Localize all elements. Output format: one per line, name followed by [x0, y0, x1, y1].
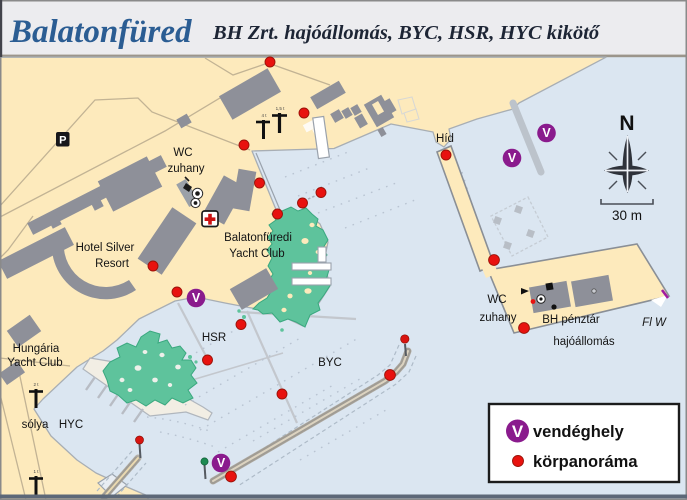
svg-text:30 m: 30 m: [612, 208, 642, 223]
svg-text:V: V: [542, 126, 551, 140]
svg-text:WC: WC: [487, 294, 506, 306]
svg-text:Yacht Club: Yacht Club: [7, 357, 62, 369]
svg-text:V: V: [217, 456, 226, 470]
svg-text:2 t: 2 t: [33, 382, 39, 387]
svg-text:Híd: Híd: [436, 133, 454, 145]
svg-text:Balatonfüredi: Balatonfüredi: [224, 232, 292, 244]
svg-text:hajóállomás: hajóállomás: [553, 336, 615, 348]
svg-text:Resort: Resort: [95, 258, 130, 270]
svg-text:BH Zrt. hajóállomás, BYC, HSR,: BH Zrt. hajóállomás, BYC, HSR, HYC kiköt…: [212, 22, 601, 44]
svg-text:Fl W: Fl W: [642, 317, 667, 329]
svg-text:1 t: 1 t: [33, 469, 39, 474]
svg-text:V: V: [192, 291, 201, 305]
svg-text:BYC: BYC: [318, 357, 342, 369]
svg-text:Balatonfüred: Balatonfüred: [9, 14, 192, 50]
svg-text:4 t: 4 t: [261, 113, 267, 118]
svg-text:Hotel Silver: Hotel Silver: [76, 242, 135, 254]
svg-text:Yacht Club: Yacht Club: [229, 248, 284, 260]
svg-text:BH pénztár: BH pénztár: [542, 314, 600, 326]
svg-text:zuhany: zuhany: [167, 163, 204, 175]
svg-text:V: V: [512, 422, 524, 441]
svg-text:HSR: HSR: [202, 332, 226, 344]
svg-text:zuhany: zuhany: [479, 312, 516, 324]
svg-text:HYC: HYC: [59, 419, 83, 431]
svg-text:V: V: [508, 151, 517, 165]
svg-text:sólya: sólya: [22, 419, 49, 431]
svg-text:vendéghely: vendéghely: [533, 423, 625, 441]
svg-text:WC: WC: [173, 147, 192, 159]
svg-text:1,5 t: 1,5 t: [276, 106, 286, 111]
svg-text:N: N: [619, 112, 634, 135]
svg-text:Hungária: Hungária: [13, 343, 60, 355]
svg-text:P: P: [59, 135, 66, 147]
svg-text:körpanoráma: körpanoráma: [533, 453, 638, 471]
